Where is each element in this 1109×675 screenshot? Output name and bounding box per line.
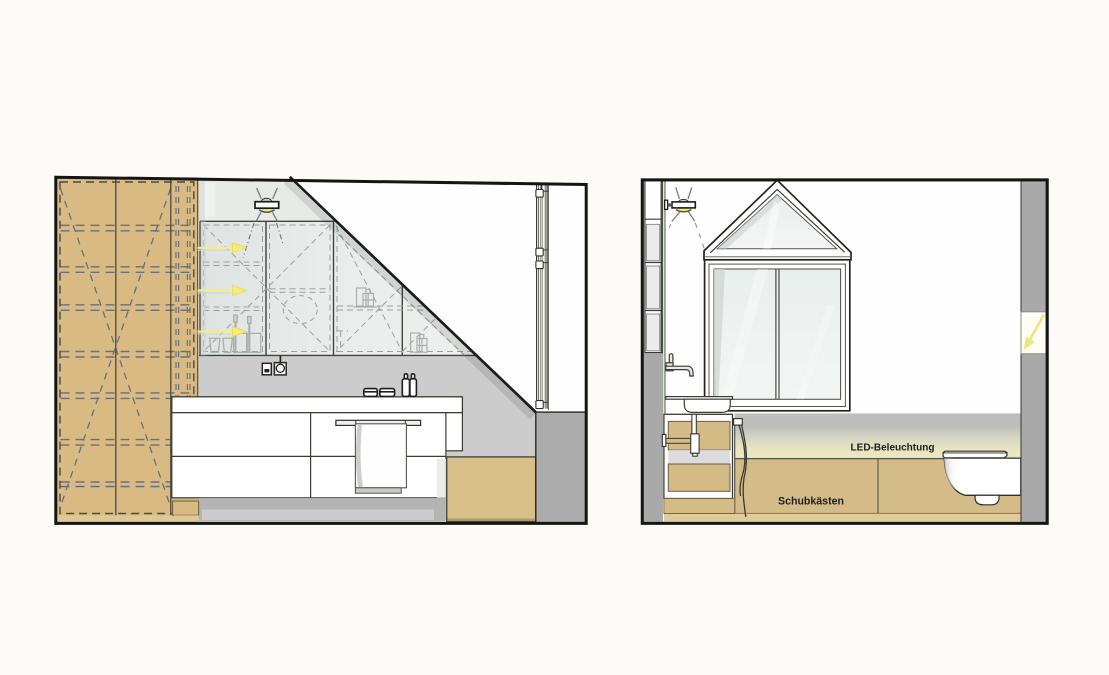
svg-text:LED-Beleuchtung: LED-Beleuchtung bbox=[851, 442, 935, 453]
svg-text:Schubkästen: Schubkästen bbox=[778, 496, 844, 508]
